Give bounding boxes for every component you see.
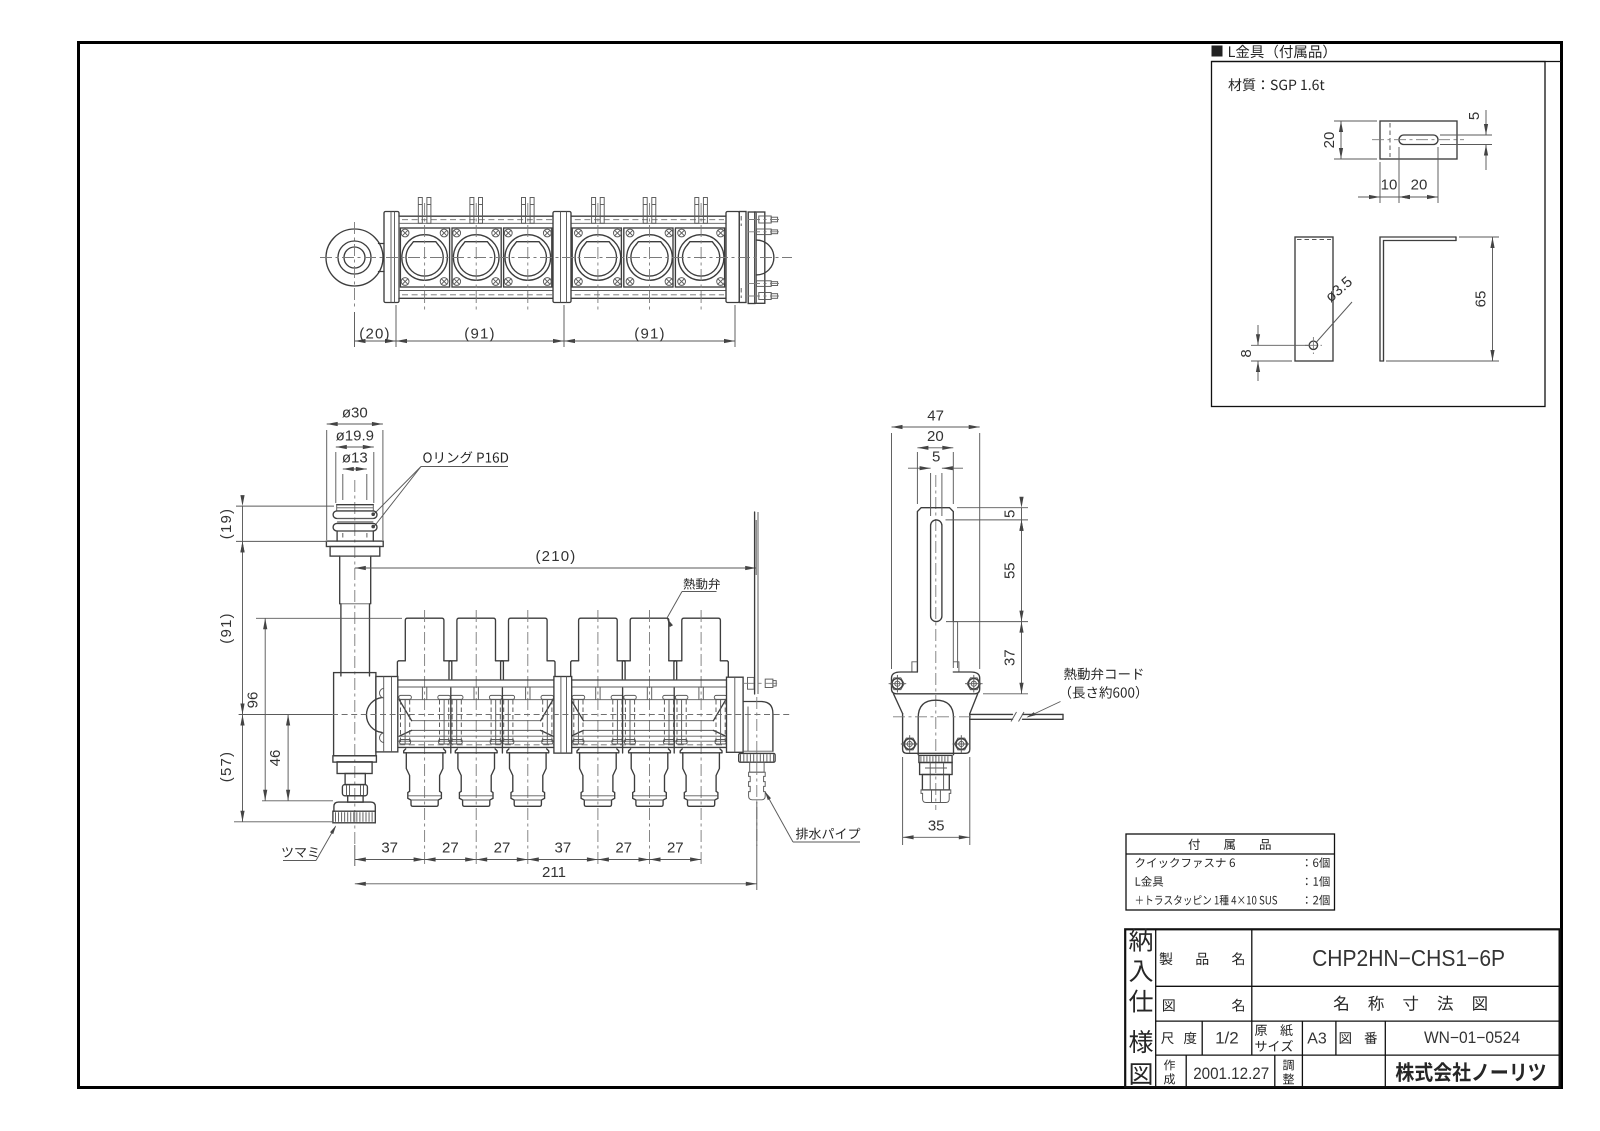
svg-text:27: 27 (615, 840, 632, 857)
svg-text:WN−01−0524: WN−01−0524 (1424, 1029, 1520, 1047)
svg-text:ø19.9: ø19.9 (336, 428, 374, 445)
svg-text:5: 5 (932, 449, 940, 466)
svg-text:47: 47 (927, 408, 944, 425)
svg-text:55: 55 (1002, 562, 1019, 579)
svg-text:35: 35 (928, 818, 945, 835)
svg-text:96: 96 (245, 692, 262, 709)
svg-text:(91): (91) (218, 612, 235, 643)
svg-text:37: 37 (1002, 649, 1019, 666)
svg-text:A3: A3 (1307, 1031, 1327, 1048)
svg-text:1/2: 1/2 (1215, 1029, 1239, 1048)
svg-text:10: 10 (1381, 177, 1398, 194)
svg-text:20: 20 (927, 428, 944, 445)
svg-text:211: 211 (542, 864, 566, 881)
svg-text:(91): (91) (464, 326, 495, 343)
svg-text:27: 27 (667, 840, 684, 857)
svg-text:(210): (210) (535, 548, 576, 565)
svg-text:CHP2HN−CHS1−6P: CHP2HN−CHS1−6P (1312, 945, 1505, 971)
svg-text:20: 20 (1321, 132, 1338, 149)
svg-text:(19): (19) (218, 508, 235, 539)
svg-text:27: 27 (494, 840, 511, 857)
svg-text:(20): (20) (359, 326, 390, 343)
svg-text:8: 8 (1238, 349, 1255, 357)
svg-text:ø13: ø13 (342, 450, 368, 467)
svg-text:ø30: ø30 (342, 405, 368, 422)
svg-text:(91): (91) (634, 326, 665, 343)
svg-text:20: 20 (1411, 177, 1428, 194)
svg-text:37: 37 (381, 840, 398, 857)
svg-text:46: 46 (267, 750, 284, 767)
svg-text:(57): (57) (218, 751, 235, 782)
svg-text:2001.12.27: 2001.12.27 (1193, 1064, 1269, 1083)
svg-text:37: 37 (555, 840, 572, 857)
svg-text:5: 5 (1002, 510, 1019, 518)
svg-text:27: 27 (442, 840, 459, 857)
svg-text:65: 65 (1473, 291, 1490, 308)
svg-text:5: 5 (1466, 112, 1483, 120)
